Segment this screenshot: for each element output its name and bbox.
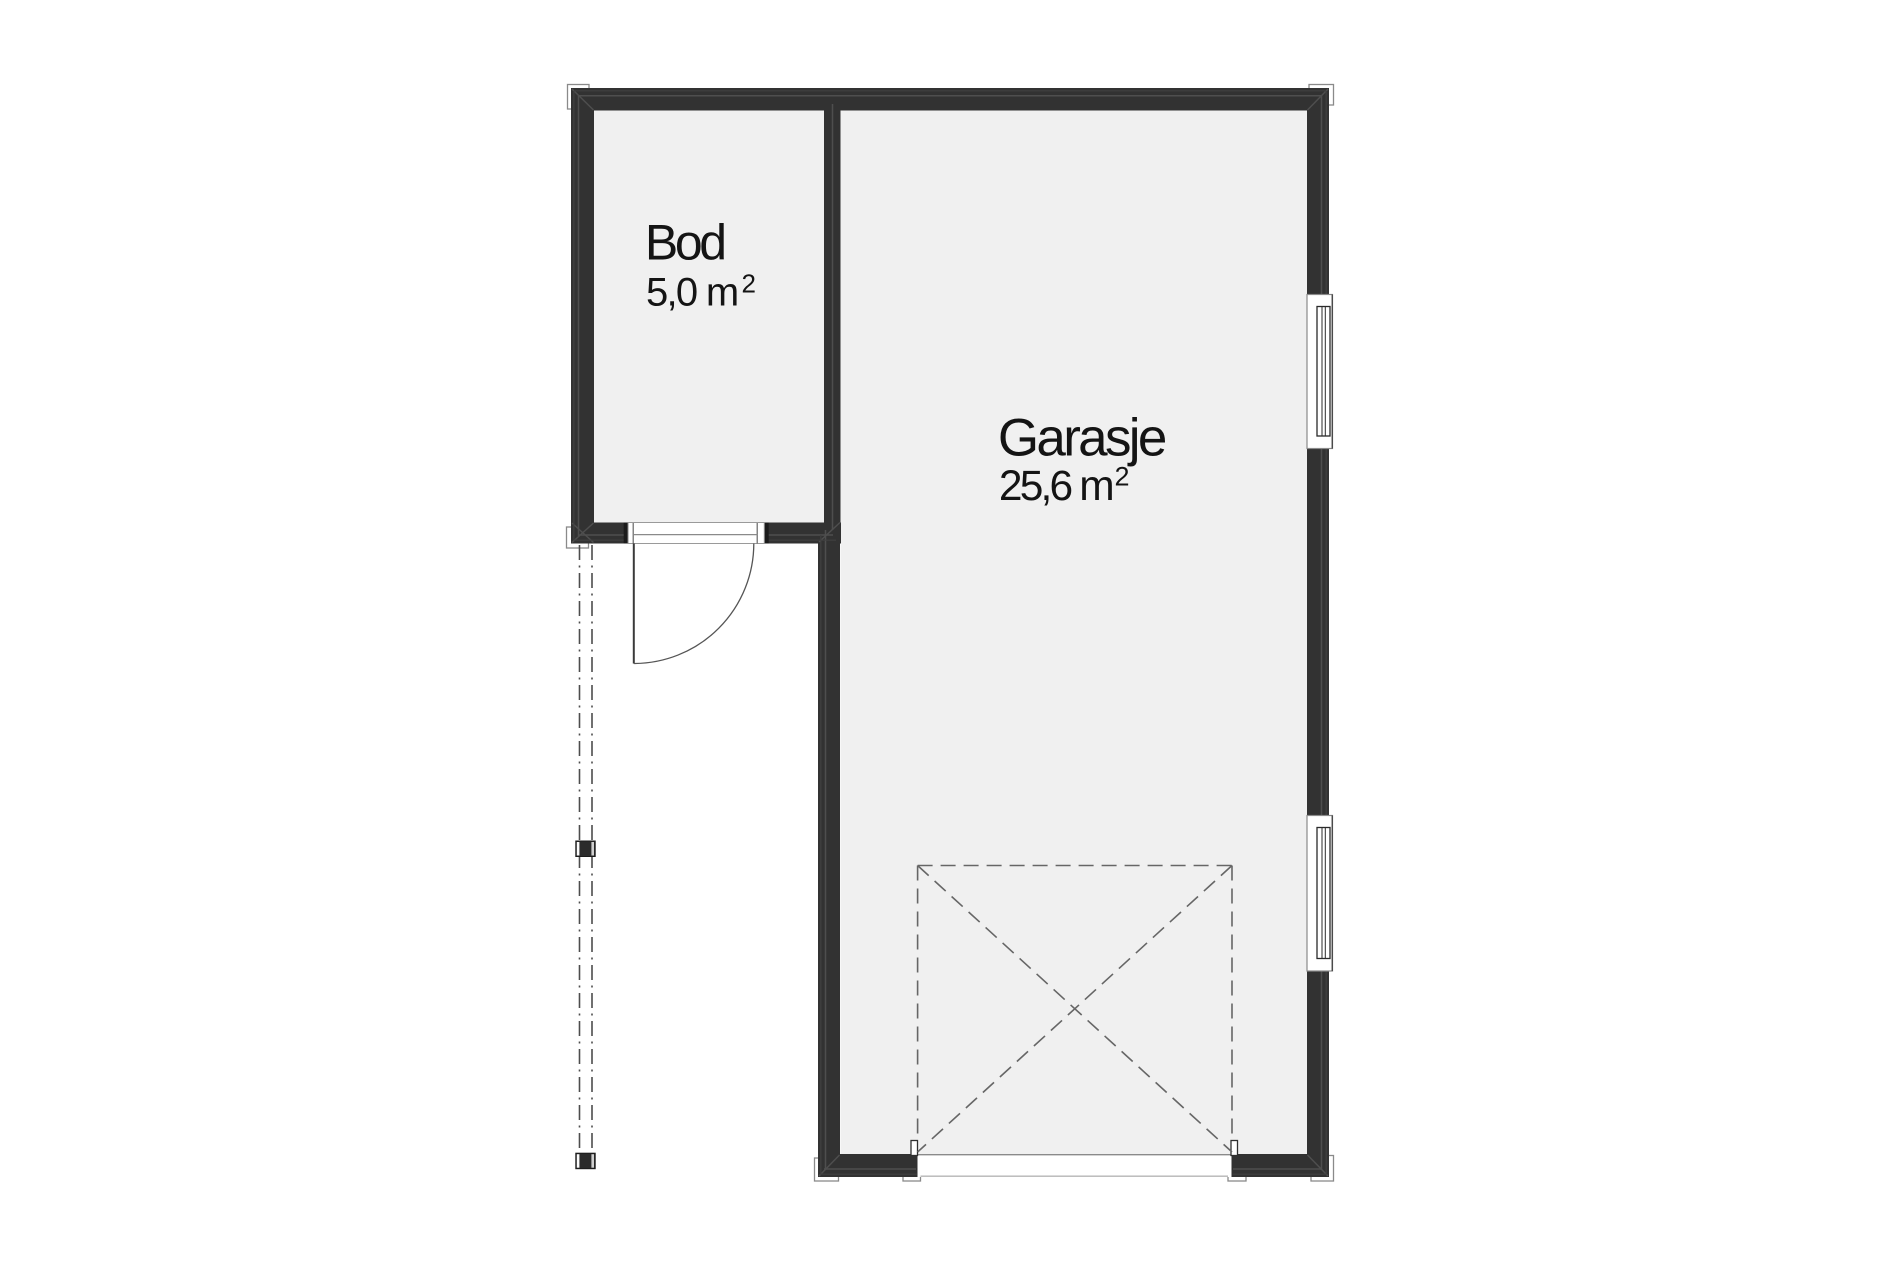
svg-text:2: 2: [742, 268, 756, 298]
svg-text:Garasje: Garasje: [998, 409, 1167, 468]
svg-text:Bod: Bod: [645, 215, 727, 271]
svg-text:2: 2: [1115, 461, 1130, 491]
svg-text:25,6 m: 25,6 m: [999, 463, 1115, 510]
svg-text:5,0 m: 5,0 m: [646, 270, 739, 314]
